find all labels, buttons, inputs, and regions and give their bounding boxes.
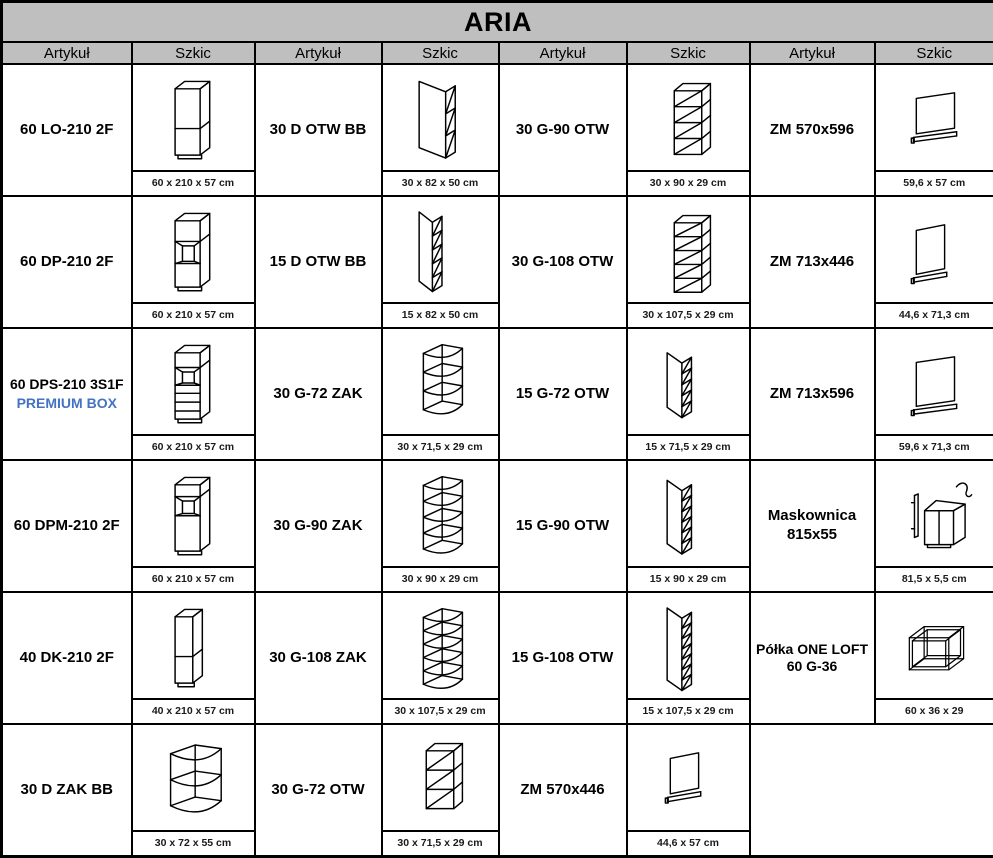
dims-label: 30 x 107,5 x 29 cm [383,698,498,721]
article-cell: 30 D OTW BB [255,64,382,196]
article-cell: ZM 570x596 [750,64,875,196]
article-cell: 15 G-72 OTW [499,328,627,460]
article-name: 60 LO-210 2F [5,121,129,140]
column-header-row: ArtykułSzkicArtykułSzkicArtykułSzkicArty… [2,42,993,64]
article-name: 30 G-108 OTW [502,253,624,272]
dims-label: 30 x 72 x 55 cm [133,830,254,853]
article-name: 30 G-90 ZAK [258,517,379,536]
sketch-wrap: 81,5 x 5,5 cm [876,463,993,589]
table-row: 60 DPS-210 3S1FPREMIUM BOX60 x 210 x 57 … [2,328,993,460]
sketch-cell: 59,6 x 71,3 cm [875,328,993,460]
article-name-line2: 815x55 [753,526,872,545]
article-cell: 30 G-72 ZAK [255,328,382,460]
tall-cabinet-2door-narrow-icon [133,595,254,698]
article-name-line2: 60 G-36 [753,658,872,676]
sketch-cell: 30 x 90 x 29 cm [627,64,750,196]
sketch-cell: 60 x 210 x 57 cm [132,460,255,592]
article-cell: Maskownica815x55 [750,460,875,592]
article-cell: 40 DK-210 2F [2,592,132,724]
article-cell: 30 G-108 ZAK [255,592,382,724]
sketch-wrap: 30 x 71,5 x 29 cm [383,331,498,457]
column-header-artykul: Artykuł [750,42,875,64]
dims-label: 30 x 90 x 29 cm [628,170,749,193]
sketch-cell: 15 x 82 x 50 cm [382,196,499,328]
article-cell: 15 G-90 OTW [499,460,627,592]
article-name: 30 D OTW BB [258,121,379,140]
article-cell: 30 G-72 OTW [255,724,382,857]
sketch-wrap: 30 x 107,5 x 29 cm [383,595,498,721]
dims-label: 60 x 210 x 57 cm [133,434,254,457]
tall-cabinet-oven-icon [133,199,254,302]
sketch-wrap: 30 x 71,5 x 29 cm [383,727,498,853]
dims-label: 15 x 71,5 x 29 cm [628,434,749,457]
table-row: 60 DP-210 2F60 x 210 x 57 cm15 D OTW BB1… [2,196,993,328]
page-title: ARIA [2,2,993,43]
article-cell: 60 LO-210 2F [2,64,132,196]
table-row: 60 DPM-210 2F60 x 210 x 57 cm30 G-90 ZAK… [2,460,993,592]
dims-label: 30 x 90 x 29 cm [383,566,498,589]
catalog-page: ARIA ArtykułSzkicArtykułSzkicArtykułSzki… [0,0,993,858]
corner-shelf-6-icon [383,595,498,698]
wall-shelf-side-6-icon [628,463,749,566]
corner-shelf-5-icon [383,463,498,566]
panel-713x596-icon [876,331,993,434]
dims-label: 30 x 71,5 x 29 cm [383,434,498,457]
article-name: 40 DK-210 2F [5,649,129,668]
panel-570x446-icon [628,727,749,830]
article-cell: 30 D ZAK BB [2,724,132,857]
article-cell: ZM 570x446 [499,724,627,857]
article-name: ZM 713x446 [753,253,872,272]
sketch-wrap: 30 x 90 x 29 cm [383,463,498,589]
open-frame-shelf-icon [876,595,993,698]
sketch-cell: 60 x 210 x 57 cm [132,196,255,328]
article-cell: 60 DPM-210 2F [2,460,132,592]
sketch-wrap: 15 x 71,5 x 29 cm [628,331,749,457]
dims-label: 30 x 107,5 x 29 cm [628,302,749,325]
sketch-wrap: 44,6 x 57 cm [628,727,749,853]
sketch-cell: 30 x 90 x 29 cm [382,460,499,592]
sketch-wrap: 15 x 107,5 x 29 cm [628,595,749,721]
article-name: ZM 713x596 [753,385,872,404]
sketch-cell: 30 x 107,5 x 29 cm [382,592,499,724]
table-row: 30 D ZAK BB30 x 72 x 55 cm30 G-72 OTW30 … [2,724,993,857]
dims-label: 44,6 x 71,3 cm [876,302,993,325]
sketch-cell: 30 x 82 x 50 cm [382,64,499,196]
wall-shelf-side-7-icon [628,595,749,698]
dims-label: 59,6 x 57 cm [876,170,993,193]
sketch-wrap: 60 x 210 x 57 cm [133,463,254,589]
table-row: 60 LO-210 2F60 x 210 x 57 cm30 D OTW BB3… [2,64,993,196]
column-header-artykul: Artykuł [2,42,132,64]
article-name: 60 DPS-210 3S1F [5,376,129,394]
article-cell: ZM 713x446 [750,196,875,328]
article-name: 15 G-90 OTW [502,517,624,536]
sketch-wrap: 60 x 210 x 57 cm [133,67,254,193]
sketch-cell: 44,6 x 57 cm [627,724,750,857]
article-name: 30 D ZAK BB [5,781,129,800]
sketch-wrap: 30 x 72 x 55 cm [133,727,254,853]
dims-label: 60 x 210 x 57 cm [133,566,254,589]
article-cell: 30 G-90 ZAK [255,460,382,592]
sketch-cell: 30 x 71,5 x 29 cm [382,724,499,857]
sketch-wrap: 30 x 107,5 x 29 cm [628,199,749,325]
sketch-wrap: 60 x 36 x 29 [876,595,993,721]
article-name: 30 G-108 ZAK [258,649,379,668]
column-header-szkic: Szkic [382,42,499,64]
article-name: 60 DPM-210 2F [5,517,129,536]
article-cell: ZM 713x596 [750,328,875,460]
dims-label: 15 x 82 x 50 cm [383,302,498,325]
article-cell: 15 D OTW BB [255,196,382,328]
dims-label: 60 x 210 x 57 cm [133,302,254,325]
sketch-cell: 15 x 107,5 x 29 cm [627,592,750,724]
column-header-artykul: Artykuł [255,42,382,64]
dims-label: 60 x 210 x 57 cm [133,170,254,193]
sketch-cell: 30 x 71,5 x 29 cm [382,328,499,460]
article-cell: 60 DPS-210 3S1FPREMIUM BOX [2,328,132,460]
corner-shelf-4-icon [383,331,498,434]
dims-label: 30 x 71,5 x 29 cm [383,830,498,853]
article-name: 30 G-72 ZAK [258,385,379,404]
dims-label: 59,6 x 71,3 cm [876,434,993,457]
dims-label: 81,5 x 5,5 cm [876,566,993,589]
sketch-cell: 81,5 x 5,5 cm [875,460,993,592]
wall-shelf-side-5-icon [628,331,749,434]
aria-catalog-table: ARIA ArtykułSzkicArtykułSzkicArtykułSzki… [0,0,993,858]
dims-label: 60 x 36 x 29 [876,698,993,721]
sketch-wrap: 60 x 210 x 57 cm [133,199,254,325]
sketch-cell: 60 x 210 x 57 cm [132,328,255,460]
panel-713x446-icon [876,199,993,302]
tall-cabinet-microwave-icon [133,463,254,566]
wall-shelf-front-4-icon [628,67,749,170]
dims-label: 30 x 82 x 50 cm [383,170,498,193]
article-cell: 30 G-108 OTW [499,196,627,328]
wall-shelf-front-5-icon [628,199,749,302]
base-open-shelf-narrow-icon [383,199,498,302]
sketch-wrap: 59,6 x 57 cm [876,67,993,193]
table-row: 40 DK-210 2F40 x 210 x 57 cm30 G-108 ZAK… [2,592,993,724]
article-name: 60 DP-210 2F [5,253,129,272]
article-cell: 15 G-108 OTW [499,592,627,724]
sketch-cell: 15 x 71,5 x 29 cm [627,328,750,460]
title-row: ARIA [2,2,993,43]
article-name: 30 G-90 OTW [502,121,624,140]
wall-shelf-front-3-icon [383,727,498,830]
article-name: Maskownica [753,507,872,526]
sketch-cell: 40 x 210 x 57 cm [132,592,255,724]
column-header-artykul: Artykuł [499,42,627,64]
sketch-wrap: 15 x 82 x 50 cm [383,199,498,325]
column-header-szkic: Szkic [627,42,750,64]
article-name: 15 G-72 OTW [502,385,624,404]
article-cell: 30 G-90 OTW [499,64,627,196]
sketch-wrap: 30 x 90 x 29 cm [628,67,749,193]
sketch-wrap: 59,6 x 71,3 cm [876,331,993,457]
article-name: 30 G-72 OTW [258,781,379,800]
article-premium-note: PREMIUM BOX [5,394,129,412]
sketch-wrap: 40 x 210 x 57 cm [133,595,254,721]
sketch-cell: 59,6 x 57 cm [875,64,993,196]
sketch-wrap: 15 x 90 x 29 cm [628,463,749,589]
empty-cell [750,724,993,857]
base-open-shelf-wide-icon [383,67,498,170]
sketch-wrap: 60 x 210 x 57 cm [133,331,254,457]
dims-label: 40 x 210 x 57 cm [133,698,254,721]
sketch-cell: 60 x 210 x 57 cm [132,64,255,196]
corner-base-shelf-3-icon [133,727,254,830]
column-header-szkic: Szkic [875,42,993,64]
article-name: ZM 570x596 [753,121,872,140]
article-name: 15 D OTW BB [258,253,379,272]
dims-label: 15 x 90 x 29 cm [628,566,749,589]
sketch-cell: 15 x 90 x 29 cm [627,460,750,592]
dims-label: 44,6 x 57 cm [628,830,749,853]
dims-label: 15 x 107,5 x 29 cm [628,698,749,721]
tall-cabinet-2door-icon [133,67,254,170]
sketch-cell: 30 x 72 x 55 cm [132,724,255,857]
sketch-cell: 30 x 107,5 x 29 cm [627,196,750,328]
article-cell: Półka ONE LOFT60 G-36 [750,592,875,724]
sketch-cell: 44,6 x 71,3 cm [875,196,993,328]
tall-cabinet-oven-drawers-icon [133,331,254,434]
column-header-szkic: Szkic [132,42,255,64]
article-name: 15 G-108 OTW [502,649,624,668]
sketch-wrap: 44,6 x 71,3 cm [876,199,993,325]
panel-570x596-icon [876,67,993,170]
article-name: ZM 570x446 [502,781,624,800]
article-cell: 60 DP-210 2F [2,196,132,328]
sketch-wrap: 30 x 82 x 50 cm [383,67,498,193]
cornice-strip-icon [876,463,993,566]
article-name: Półka ONE LOFT [753,641,872,659]
sketch-cell: 60 x 36 x 29 [875,592,993,724]
